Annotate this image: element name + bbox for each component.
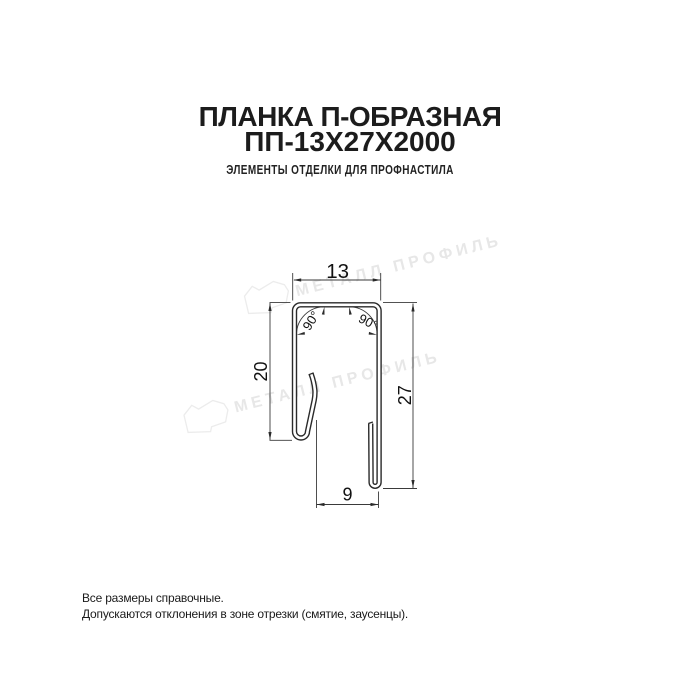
svg-text:20: 20 [251,361,271,381]
svg-text:9: 9 [342,485,352,505]
svg-text:27: 27 [395,385,415,405]
svg-text:МЕТАЛЛ ПРОФИЛЬ: МЕТАЛЛ ПРОФИЛЬ [294,233,500,300]
svg-text:МЕТАЛЛ ПРОФИЛЬ: МЕТАЛЛ ПРОФИЛЬ [233,350,439,417]
svg-text:90°: 90° [299,308,322,333]
svg-text:13: 13 [326,260,349,283]
